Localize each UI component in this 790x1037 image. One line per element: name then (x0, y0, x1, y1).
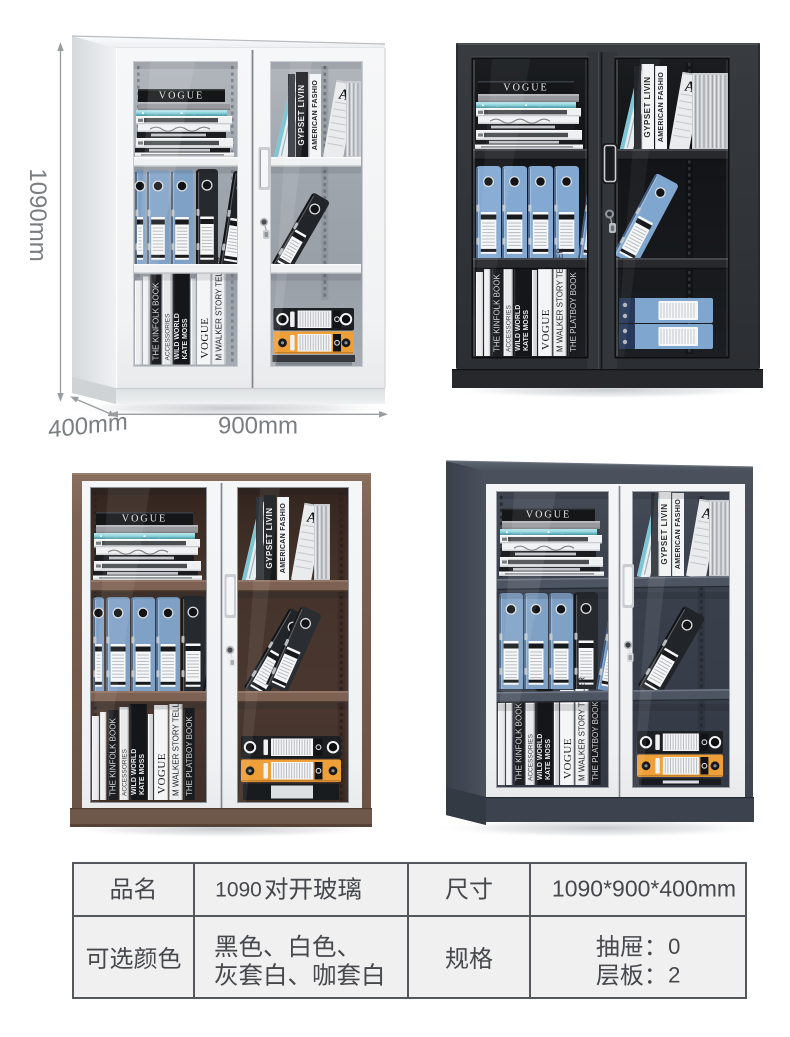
svg-text:AMERICAN FASHIO: AMERICAN FASHIO (658, 72, 665, 142)
svg-text:ACCESSORIES: ACCESSORIES (121, 748, 128, 796)
svg-text:900mm: 900mm (218, 413, 298, 440)
svg-text:ACCESSORIES: ACCESSORIES (505, 304, 512, 352)
svg-text:1090: 1090 (215, 879, 262, 902)
svg-text:KATE MOSS: KATE MOSS (523, 310, 530, 351)
svg-text:AMERICAN FASHIO: AMERICAN FASHIO (675, 499, 682, 569)
svg-text:AMERICAN FASHIO: AMERICAN FASHIO (280, 503, 287, 573)
svg-text:VOGUE: VOGUE (156, 753, 168, 794)
svg-text:1090mm: 1090mm (24, 168, 51, 261)
svg-text:AMERICAN FASHIO: AMERICAN FASHIO (312, 80, 319, 150)
svg-text:THE PLATBOY BOOK: THE PLATBOY BOOK (569, 272, 578, 352)
svg-text:VOGUE: VOGUE (562, 738, 574, 779)
svg-text:THE PLATBOY BOOK: THE PLATBOY BOOK (591, 701, 600, 781)
svg-text:WILD WORLD: WILD WORLD (515, 305, 522, 351)
svg-text:KATE MOSS: KATE MOSS (545, 739, 552, 780)
svg-text:WILD WORLD: WILD WORLD (174, 313, 181, 359)
svg-text:VOGUE: VOGUE (199, 318, 211, 359)
svg-text:1090*900*400mm: 1090*900*400mm (552, 876, 736, 902)
svg-text:WILD WORLD: WILD WORLD (537, 734, 544, 780)
svg-text:400mm: 400mm (48, 408, 128, 443)
svg-text:KATE MOSS: KATE MOSS (139, 754, 146, 795)
svg-text:ACCESSORIES: ACCESSORIES (164, 313, 171, 361)
svg-text:THE KINFOLK BOOK: THE KINFOLK BOOK (493, 274, 502, 352)
svg-text:0: 0 (668, 934, 680, 959)
svg-text:ACCESSORIES: ACCESSORIES (527, 733, 534, 781)
svg-text:KATE MOSS: KATE MOSS (182, 318, 189, 359)
svg-text:VOGUE: VOGUE (540, 309, 552, 350)
svg-text:2: 2 (668, 963, 680, 988)
svg-text:WILD WORLD: WILD WORLD (131, 749, 138, 795)
svg-text:THE PLATBOY BOOK: THE PLATBOY BOOK (185, 716, 194, 796)
